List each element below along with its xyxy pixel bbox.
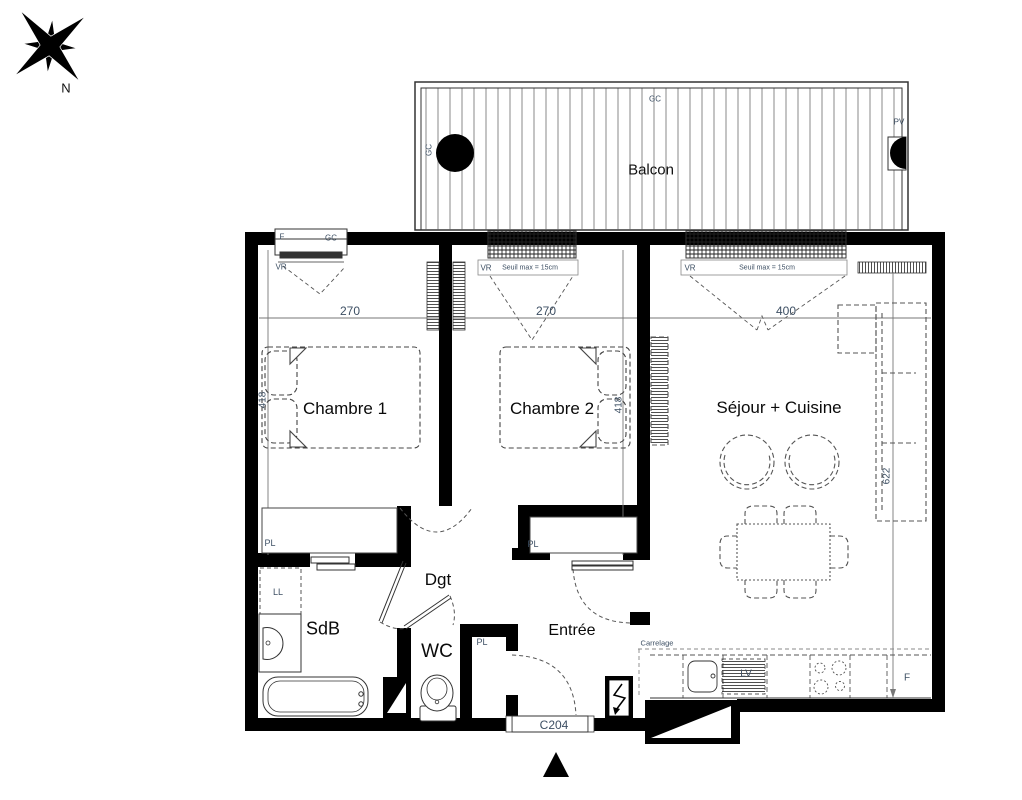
window-sejour: [681, 231, 847, 330]
entrance-door-code: C204: [540, 718, 569, 732]
armchair-2: [785, 435, 839, 489]
window1-f-label: F: [280, 233, 285, 242]
kitchen-sink: [688, 661, 717, 692]
bathtub: [263, 677, 368, 716]
entrance-marker-icon: [543, 752, 569, 777]
room-dgt-label: Dgt: [425, 570, 451, 590]
kitchen: [638, 649, 931, 698]
dishwasher-label: LV: [740, 669, 752, 680]
burner: [815, 663, 825, 673]
dim-chambre1-width: 270: [340, 304, 360, 318]
window3-vr-label: VR: [684, 264, 695, 273]
compass-rose-icon: [0, 0, 115, 111]
room-wc-label: WC: [421, 641, 453, 663]
room-sejour-label: Séjour + Cuisine: [716, 398, 841, 418]
bed-chambre1: [262, 347, 420, 448]
toilet: [420, 675, 456, 721]
window3-seuil-label: Seuil max = 15cm: [739, 265, 795, 272]
washer-label: LL: [273, 587, 283, 597]
entree-sliding-door: [572, 561, 633, 565]
room-chambre2-label: Chambre 2: [510, 399, 594, 419]
wc-door-leaf: [404, 595, 451, 629]
floor-note-label: Carrelage: [641, 639, 674, 648]
balcony-label: Balcon: [628, 162, 674, 179]
sofa-body: [876, 303, 926, 521]
vanity: [259, 614, 301, 672]
compass-north-label: N: [61, 81, 70, 96]
bed-chambre2: [500, 347, 630, 448]
window1-gc-label: GC: [325, 234, 337, 243]
sdb-door-leaf: [379, 561, 406, 623]
towel-radiator: [311, 557, 349, 563]
balcony-area: [415, 82, 908, 230]
sofa-arm: [838, 305, 876, 353]
towel-radiator: [317, 564, 355, 570]
window-chambre2: [478, 231, 578, 340]
burner: [832, 661, 846, 675]
balcony-column: [436, 134, 474, 172]
balcony-gc-left-label: GC: [425, 144, 434, 156]
burner: [814, 680, 828, 694]
dim-chambre2-depth: 418: [614, 397, 625, 414]
balcony-pv-label: PV: [894, 118, 905, 127]
dim-sejour-depth: 622: [882, 468, 893, 485]
burner: [836, 682, 845, 691]
room-chambre1-label: Chambre 1: [303, 399, 387, 419]
dim-chambre2-width: 270: [536, 304, 556, 318]
closet-entree-label: PL: [476, 637, 487, 647]
dim-sejour-width: 400: [776, 304, 796, 318]
floor-plan: N Balcon GC GC PV F GC VR VR Seuil max =…: [0, 0, 1022, 800]
balcony-gc-top-label: GC: [649, 95, 661, 104]
window2-vr-label: VR: [480, 264, 491, 273]
closet-chambre2-label: PL: [527, 539, 538, 549]
room-sdb-label: SdB: [306, 619, 340, 640]
radiator: [651, 337, 668, 445]
closet-chambre1-label: PL: [264, 538, 275, 548]
window1-vr-label: VR: [275, 263, 286, 272]
window2-seuil-label: Seuil max = 15cm: [502, 265, 558, 272]
armchair-1: [720, 435, 774, 489]
electrical-panel-icon: [605, 676, 633, 720]
room-entree-label: Entrée: [548, 622, 595, 640]
windows: [275, 229, 847, 340]
sejour-furniture: [651, 303, 926, 598]
dim-chambre1-depth: 418: [258, 392, 269, 409]
dining-table: [737, 524, 830, 580]
fridge-label: F: [904, 673, 910, 684]
